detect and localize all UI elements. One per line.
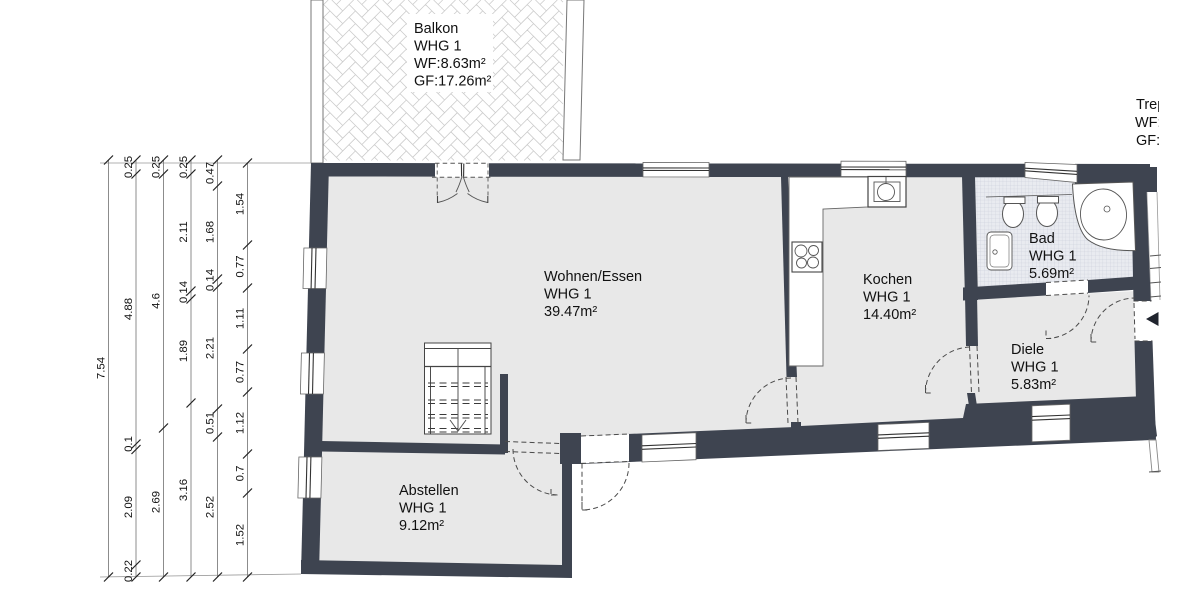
svg-text:0.77: 0.77 <box>234 255 246 277</box>
svg-text:2.09: 2.09 <box>123 496 135 518</box>
svg-text:0.77: 0.77 <box>234 361 246 383</box>
svg-text:7.54: 7.54 <box>95 357 107 379</box>
svg-text:0.51: 0.51 <box>204 412 216 434</box>
svg-text:4.88: 4.88 <box>123 298 135 320</box>
svg-text:GF:17.26m²: GF:17.26m² <box>414 74 492 90</box>
svg-text:2.11: 2.11 <box>178 221 190 242</box>
svg-text:0.25: 0.25 <box>123 156 135 178</box>
svg-text:Diele: Diele <box>1011 342 1044 358</box>
svg-text:GF:: GF: <box>1136 133 1160 149</box>
svg-text:2.69: 2.69 <box>150 491 162 513</box>
svg-text:1.89: 1.89 <box>178 340 190 362</box>
svg-text:5.83m²: 5.83m² <box>1011 377 1056 393</box>
svg-text:WHG 1: WHG 1 <box>1011 360 1059 376</box>
svg-text:0.25: 0.25 <box>178 156 190 178</box>
svg-text:1.54: 1.54 <box>234 193 246 215</box>
svg-text:0.47: 0.47 <box>204 162 216 184</box>
svg-text:Balkon: Balkon <box>414 21 458 37</box>
svg-text:2.21: 2.21 <box>204 337 216 359</box>
svg-text:1.52: 1.52 <box>234 524 246 546</box>
svg-text:14.40m²: 14.40m² <box>863 307 916 323</box>
svg-text:0.14: 0.14 <box>178 281 190 303</box>
svg-text:WHG 1: WHG 1 <box>399 501 447 517</box>
svg-text:WHG 1: WHG 1 <box>544 287 592 303</box>
svg-text:1.68: 1.68 <box>204 221 216 243</box>
svg-text:Abstellen: Abstellen <box>399 483 459 499</box>
svg-text:0.25: 0.25 <box>150 156 162 178</box>
svg-text:0.14: 0.14 <box>204 269 216 291</box>
svg-text:0.7: 0.7 <box>234 466 246 482</box>
svg-text:1.12: 1.12 <box>234 412 246 434</box>
svg-text:WHG 1: WHG 1 <box>1029 249 1077 265</box>
svg-text:5.69m²: 5.69m² <box>1029 266 1074 282</box>
svg-text:WF:: WF: <box>1135 115 1162 131</box>
svg-text:2.52: 2.52 <box>204 496 216 518</box>
svg-text:Bad: Bad <box>1029 231 1055 247</box>
svg-text:WF:8.63m²: WF:8.63m² <box>414 56 486 72</box>
svg-text:0.1: 0.1 <box>123 436 135 452</box>
svg-text:3.16: 3.16 <box>178 479 190 501</box>
svg-text:4.6: 4.6 <box>150 293 162 309</box>
svg-text:0.22: 0.22 <box>123 560 135 582</box>
svg-text:Kochen: Kochen <box>863 272 912 288</box>
svg-text:WHG 1: WHG 1 <box>863 290 911 306</box>
svg-text:9.12m²: 9.12m² <box>399 518 444 534</box>
svg-text:WHG 1: WHG 1 <box>414 39 462 55</box>
svg-text:1.11: 1.11 <box>234 308 246 329</box>
svg-text:Wohnen/Essen: Wohnen/Essen <box>544 269 642 285</box>
svg-text:39.47m²: 39.47m² <box>544 304 597 320</box>
